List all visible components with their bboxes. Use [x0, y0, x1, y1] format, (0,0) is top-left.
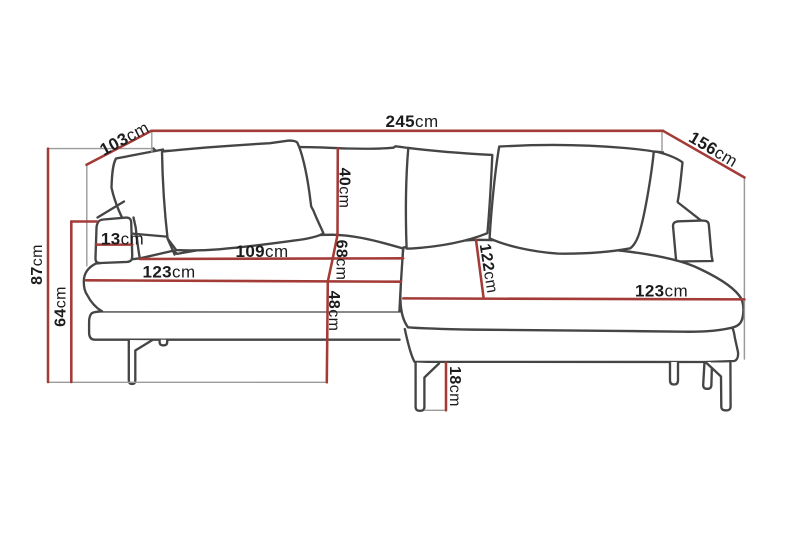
svg-text:123cm: 123cm [142, 263, 195, 282]
svg-text:87cm: 87cm [28, 244, 45, 285]
svg-text:109cm: 109cm [235, 242, 288, 261]
svg-text:245cm: 245cm [385, 112, 438, 131]
svg-text:18cm: 18cm [447, 366, 464, 407]
svg-text:48cm: 48cm [326, 291, 343, 332]
svg-text:123cm: 123cm [635, 282, 688, 301]
svg-text:68cm: 68cm [333, 240, 350, 281]
svg-text:13cm: 13cm [101, 229, 144, 248]
svg-text:40cm: 40cm [336, 168, 353, 209]
svg-text:64cm: 64cm [52, 286, 69, 327]
